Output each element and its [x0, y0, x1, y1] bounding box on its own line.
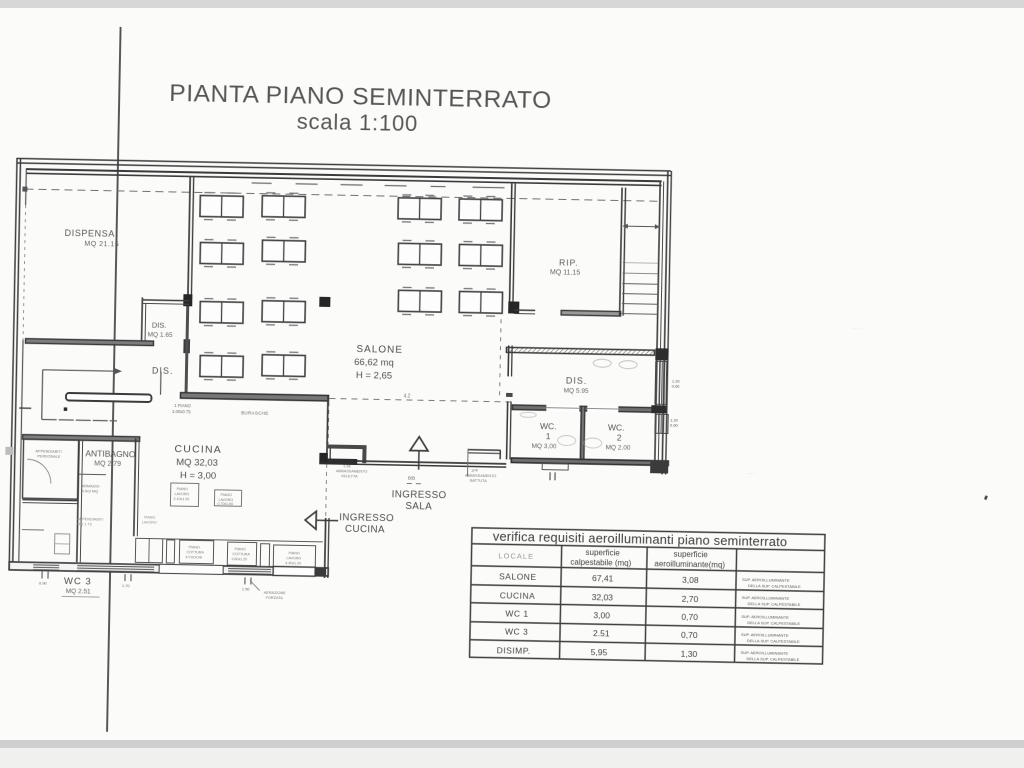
svg-text:ABBASSAMENTO: ABBASSAMENTO	[465, 474, 496, 479]
svg-text:1.98: 1.98	[343, 464, 350, 468]
svg-text:1PP: 1PP	[471, 469, 479, 473]
svg-text:3,00: 3,00	[593, 610, 610, 620]
svg-text:H = 3,00: H = 3,00	[180, 470, 216, 482]
svg-text:scala 1:100: scala 1:100	[297, 109, 419, 136]
svg-text:AERAZIONE: AERAZIONE	[264, 591, 286, 595]
svg-text:MQ 2.79: MQ 2.79	[94, 460, 121, 468]
svg-text:4 FUOCHI: 4 FUOCHI	[185, 555, 202, 559]
svg-text:superficie: superficie	[673, 550, 708, 560]
svg-text:PIANO: PIANO	[144, 515, 155, 519]
svg-text:B/B: B/B	[408, 476, 415, 481]
svg-text:H = 2,65: H = 2,65	[356, 370, 392, 382]
svg-text:SALA: SALA	[405, 501, 432, 513]
svg-text:WC 3: WC 3	[64, 576, 92, 588]
svg-text:0.90: 0.90	[39, 580, 48, 585]
svg-text:PIANO: PIANO	[177, 487, 188, 491]
svg-text:0.70x1.60: 0.70x1.60	[217, 502, 233, 506]
svg-text:0.60: 0.60	[672, 384, 681, 389]
svg-text:ANTIBAGNO: ANTIBAGNO	[85, 448, 136, 459]
svg-text:SUP. AEROILLUMINANTE: SUP. AEROILLUMINANTE	[741, 632, 789, 638]
svg-text:MQ 3,00: MQ 3,00	[532, 443, 557, 450]
svg-text:WC.: WC.	[608, 422, 625, 432]
svg-text:DELLA SUP. CALPESTABILE: DELLA SUP. CALPESTABILE	[748, 601, 801, 607]
svg-text:PIANO: PIANO	[221, 493, 232, 497]
svg-text:ABBASSAMENTO: ABBASSAMENTO	[336, 469, 367, 474]
svg-text:aeroilluminante(mq): aeroilluminante(mq)	[654, 559, 725, 569]
svg-text:BURASCHE: BURASCHE	[241, 410, 268, 416]
svg-text:DIS.: DIS.	[152, 321, 167, 330]
svg-text:RIP.: RIP.	[559, 257, 579, 267]
svg-text:MQ 11.15: MQ 11.15	[550, 269, 580, 277]
svg-text:4.40x1.20: 4.40x1.20	[285, 561, 301, 565]
svg-text:67,41: 67,41	[592, 573, 614, 583]
svg-text:PERSONALE: PERSONALE	[37, 454, 61, 458]
svg-text:4.5x3 MQ: 4.5x3 MQ	[82, 489, 99, 493]
svg-text:2.00x0.75: 2.00x0.75	[172, 409, 191, 414]
svg-text:2,70: 2,70	[682, 594, 699, 604]
svg-text:CUCINA: CUCINA	[345, 524, 385, 536]
svg-text:SUP. AEROILLUMINANTE: SUP. AEROILLUMINANTE	[742, 577, 790, 583]
svg-text:5,95: 5,95	[591, 647, 608, 657]
svg-text:LAVORO: LAVORO	[286, 556, 301, 560]
svg-text:ARMADIO: ARMADIO	[82, 484, 100, 488]
svg-text:calpestabile (mq): calpestabile (mq)	[570, 558, 631, 568]
svg-text:SALONE: SALONE	[356, 344, 403, 356]
svg-text:BATTUTA: BATTUTA	[470, 479, 487, 483]
svg-text:0,70: 0,70	[681, 630, 698, 640]
svg-text:APPENDIABITI: APPENDIABITI	[35, 449, 61, 454]
svg-text:1 PIANO: 1 PIANO	[174, 403, 191, 408]
svg-text:66,62 mq: 66,62 mq	[354, 357, 394, 369]
svg-text:MQ 5.95: MQ 5.95	[564, 387, 589, 394]
svg-text:0,70: 0,70	[681, 612, 698, 622]
svg-text:CUCINA: CUCINA	[500, 590, 536, 601]
svg-text:DIS.: DIS.	[152, 366, 174, 376]
svg-text:LOCALE: LOCALE	[498, 551, 534, 561]
svg-text:LAVORO: LAVORO	[142, 520, 157, 524]
svg-text:4.2: 4.2	[403, 393, 410, 399]
svg-text:SUP. AEROILLUMINANTE: SUP. AEROILLUMINANTE	[741, 650, 789, 656]
svg-text:0.60: 0.60	[670, 423, 679, 428]
svg-text:FORZATA: FORZATA	[266, 596, 284, 600]
svg-text:SUP. AEROILLUMINANTE: SUP. AEROILLUMINANTE	[742, 595, 790, 601]
svg-text:1.70: 1.70	[122, 583, 131, 588]
svg-text:verifica requisiti aeroillumin: verifica requisiti aeroilluminanti piano…	[493, 529, 788, 550]
svg-text:SUP. AEROILLUMINANTE: SUP. AEROILLUMINANTE	[741, 614, 789, 620]
svg-text:1,30: 1,30	[681, 649, 698, 659]
svg-text:PIANO: PIANO	[235, 547, 246, 551]
svg-text:MQ 1.73: MQ 1.73	[77, 522, 92, 526]
svg-text:2: 2	[617, 433, 622, 443]
svg-text:COTTURA: COTTURA	[232, 552, 250, 556]
svg-text:. .. ..: . .. ..	[852, 325, 862, 331]
svg-text:MQ 21.15: MQ 21.15	[84, 241, 119, 249]
svg-text:2.10x1.20: 2.10x1.20	[173, 497, 189, 501]
svg-text:DELLA SUP. CALPESTABILE: DELLA SUP. CALPESTABILE	[747, 656, 800, 662]
svg-text:DELLA SUP. CALPESTABILE: DELLA SUP. CALPESTABILE	[748, 583, 801, 589]
svg-text:COTTURA: COTTURA	[186, 550, 204, 554]
svg-text:MQ 1.65: MQ 1.65	[148, 331, 173, 338]
svg-text:MQ 32,03: MQ 32,03	[176, 457, 218, 469]
svg-text:INGRESSO: INGRESSO	[392, 489, 447, 501]
svg-text:. .. .: . .. .	[747, 470, 755, 476]
svg-text:DISIMP.: DISIMP.	[497, 645, 531, 656]
svg-text:WC 3: WC 3	[505, 626, 528, 636]
svg-text:PIANO: PIANO	[189, 545, 200, 549]
svg-text:WC 1: WC 1	[505, 608, 528, 618]
svg-text:INGRESSO: INGRESSO	[339, 512, 394, 524]
svg-text:DELLA SUP. CALPESTABILE: DELLA SUP. CALPESTABILE	[747, 638, 800, 644]
svg-text:3,08: 3,08	[682, 575, 699, 585]
svg-text:VELETTA: VELETTA	[341, 474, 358, 478]
svg-text:32,03: 32,03	[592, 592, 614, 602]
svg-text:WC.: WC.	[540, 421, 557, 431]
svg-text:1: 1	[546, 431, 551, 441]
svg-text:CUCINA: CUCINA	[174, 443, 222, 456]
svg-text:LAVORO: LAVORO	[175, 492, 190, 496]
svg-text:DELLA SUP. CALPESTABILE: DELLA SUP. CALPESTABILE	[747, 620, 800, 626]
svg-text:MQ 2.00: MQ 2.00	[606, 444, 631, 451]
svg-text:DIS.: DIS.	[566, 376, 588, 386]
svg-text:2.51: 2.51	[593, 628, 610, 638]
svg-text:APPENDIABITI: APPENDIABITI	[77, 517, 103, 522]
svg-text:DISPENSA: DISPENSA	[65, 228, 116, 239]
svg-text:1.50: 1.50	[242, 586, 251, 591]
svg-text:superficie: superficie	[585, 548, 620, 558]
svg-text:MQ 2.51: MQ 2.51	[66, 588, 91, 595]
svg-text:PIANO: PIANO	[288, 551, 299, 555]
svg-text:3.60x1.20: 3.60x1.20	[231, 557, 247, 561]
svg-text:SALONE: SALONE	[499, 571, 537, 582]
